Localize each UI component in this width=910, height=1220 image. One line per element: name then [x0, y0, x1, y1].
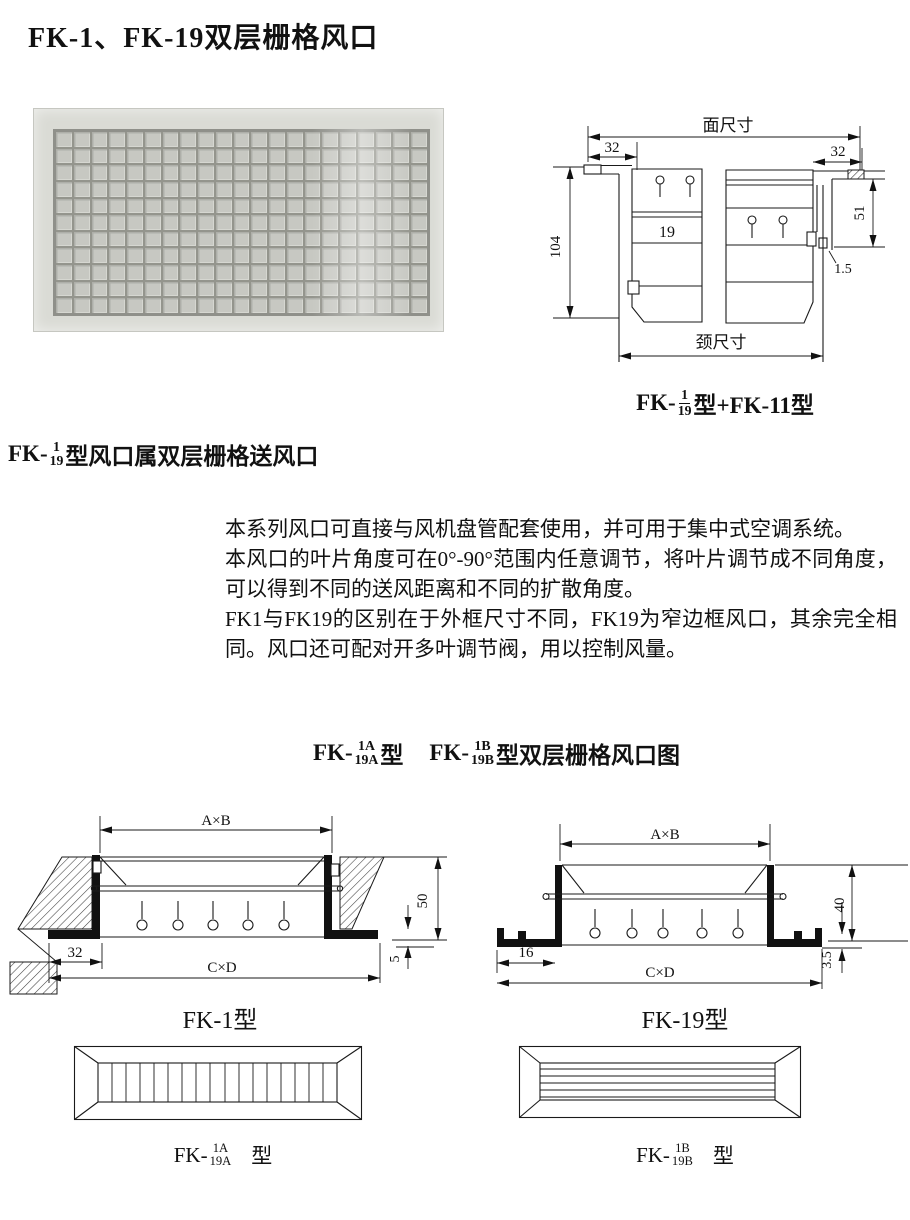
- fraction: 1B19B: [471, 739, 494, 767]
- grille-cell: [216, 149, 232, 164]
- face-view-b-svg: [518, 1045, 802, 1119]
- grille-cell: [92, 165, 108, 180]
- grille-cell: [180, 215, 196, 230]
- grille-cell: [234, 248, 250, 263]
- grille-cell: [269, 298, 285, 313]
- grille-cell: [56, 248, 72, 263]
- grille-cell: [109, 149, 125, 164]
- grille-cell: [411, 149, 427, 164]
- dim-51-label: 51: [852, 206, 868, 221]
- grille-cell: [198, 265, 214, 280]
- drawing-fk1-svg: A×B 32 C×D 50 5: [10, 797, 450, 997]
- grille-cell: [198, 149, 214, 164]
- grille-cell: [216, 215, 232, 230]
- grille-cell: [198, 282, 214, 297]
- grille-cell: [127, 232, 143, 247]
- grille-cell: [251, 215, 267, 230]
- grille-cell: [92, 149, 108, 164]
- grille-cell: [163, 298, 179, 313]
- drawing-combined: 面尺寸 32 32 104 51 19 1.5 颈尺寸 FK-119型+FK-1…: [540, 100, 910, 420]
- fk1-cd-label: C×D: [207, 960, 236, 976]
- grille-cell: [411, 298, 427, 313]
- grille-cell: [198, 298, 214, 313]
- grille-cell: [163, 165, 179, 180]
- face-a-linework: [75, 1047, 362, 1120]
- grille-cell: [234, 282, 250, 297]
- grille-cell: [145, 232, 161, 247]
- grille-cell: [251, 182, 267, 197]
- grille-cell: [145, 165, 161, 180]
- grille-cell: [251, 298, 267, 313]
- grille-cell: [109, 215, 125, 230]
- grille-cell: [109, 232, 125, 247]
- grille-cell: [74, 165, 90, 180]
- grille-cell: [287, 248, 303, 263]
- grille-cell: [127, 149, 143, 164]
- grille-cell: [56, 149, 72, 164]
- fraction: 1A19A: [355, 739, 379, 767]
- grille-cell: [180, 282, 196, 297]
- grille-cell: [251, 265, 267, 280]
- grille-cell: [411, 265, 427, 280]
- grille-cell: [74, 265, 90, 280]
- grille-cell: [269, 149, 285, 164]
- grille-cell: [74, 182, 90, 197]
- dim-32-right-label: 32: [831, 144, 846, 160]
- grille-cell: [56, 199, 72, 214]
- fk1-50-label: 50: [415, 894, 431, 909]
- grille-cell: [234, 132, 250, 147]
- grille-cell: [109, 132, 125, 147]
- grille-cell: [56, 298, 72, 313]
- grille-cell: [163, 182, 179, 197]
- grille-cell: [127, 182, 143, 197]
- grille-cell: [92, 265, 108, 280]
- grille-cell: [234, 232, 250, 247]
- grille-cell: [251, 199, 267, 214]
- grille-cell: [109, 199, 125, 214]
- grille-cell: [251, 132, 267, 147]
- grille-cell: [180, 232, 196, 247]
- grille-cell: [287, 149, 303, 164]
- dim-face-label: 面尺寸: [703, 116, 754, 135]
- grille-cell: [56, 232, 72, 247]
- grille-cell: [145, 298, 161, 313]
- grille-cell: [234, 165, 250, 180]
- grille-cell: [198, 248, 214, 263]
- grille-cell: [56, 282, 72, 297]
- body-text: 本系列风口可直接与风机盘管配套使用，并可用于集中式空调系统。 本风口的叶片角度可…: [225, 514, 897, 664]
- grille-cell: [287, 232, 303, 247]
- grille-cell: [411, 132, 427, 147]
- grille-cell: [198, 165, 214, 180]
- grille-cell: [234, 149, 250, 164]
- grille-cell: [74, 232, 90, 247]
- grille-cell: [180, 199, 196, 214]
- grille-cell: [216, 199, 232, 214]
- grille-cell: [56, 165, 72, 180]
- fraction: 119: [50, 440, 64, 468]
- grille-cell: [269, 265, 285, 280]
- grille-cell: [145, 265, 161, 280]
- fk1-32-label: 32: [68, 945, 83, 961]
- grille-cell: [74, 149, 90, 164]
- face-a-caption: FK-1A19A型: [73, 1140, 373, 1170]
- grille-cell: [92, 282, 108, 297]
- grille-cell: [163, 265, 179, 280]
- face-view-a-svg: [73, 1045, 363, 1121]
- grille-cell: [145, 282, 161, 297]
- grille-cell: [56, 132, 72, 147]
- grille-cell: [180, 149, 196, 164]
- grille-cell: [145, 215, 161, 230]
- d1-linework: [553, 126, 885, 362]
- grille-cell: [269, 215, 285, 230]
- grille-cell: [269, 199, 285, 214]
- dim-104-label: 104: [548, 235, 564, 258]
- grille-cell: [127, 282, 143, 297]
- grille-cell: [411, 248, 427, 263]
- grille-cell: [269, 232, 285, 247]
- grille-cell: [251, 248, 267, 263]
- grille-cell: [251, 282, 267, 297]
- grille-cell: [56, 265, 72, 280]
- face-b-linework: [520, 1047, 801, 1118]
- grille-cell: [216, 232, 232, 247]
- grille-cell: [127, 199, 143, 214]
- grille-cell: [216, 248, 232, 263]
- grille-cell: [56, 182, 72, 197]
- grille-cell: [163, 282, 179, 297]
- grille-cell: [287, 298, 303, 313]
- grille-cell: [127, 265, 143, 280]
- grille-cell: [163, 199, 179, 214]
- grille-cell: [216, 298, 232, 313]
- grille-cell: [56, 215, 72, 230]
- grille-cell: [234, 298, 250, 313]
- grille-cell: [74, 132, 90, 147]
- grille-cell: [92, 199, 108, 214]
- grille-cell: [92, 182, 108, 197]
- grille-cell: [92, 248, 108, 263]
- grille-cell: [163, 232, 179, 247]
- grille-cell: [127, 298, 143, 313]
- grille-cell: [198, 199, 214, 214]
- fk19-40-label: 40: [832, 898, 848, 913]
- grille-cell: [163, 248, 179, 263]
- grille-cell: [269, 248, 285, 263]
- grille-cell: [269, 282, 285, 297]
- grille-cell: [216, 282, 232, 297]
- face-b-caption: FK-1B19B型: [535, 1140, 835, 1170]
- grille-cell: [234, 215, 250, 230]
- grille-cell: [74, 282, 90, 297]
- grille-cell: [411, 282, 427, 297]
- fraction: 1A19A: [210, 1142, 232, 1168]
- grille-cell: [163, 215, 179, 230]
- grille-cell: [74, 298, 90, 313]
- fk1-ab-label: A×B: [201, 813, 230, 829]
- grille-cell: [109, 165, 125, 180]
- fraction: 1B19B: [672, 1142, 693, 1168]
- drawing-fk19-svg: A×B 16 C×D 40 3.5: [470, 797, 910, 997]
- grille-cell: [109, 265, 125, 280]
- grille-cell: [163, 132, 179, 147]
- grille-cell: [287, 215, 303, 230]
- grille-cell: [180, 265, 196, 280]
- fk19-ab-label: A×B: [650, 827, 679, 843]
- grille-cell: [198, 132, 214, 147]
- grille-cell: [127, 215, 143, 230]
- grille-cell: [109, 248, 125, 263]
- grille-cell: [163, 149, 179, 164]
- grille-cell: [145, 248, 161, 263]
- drawing-fk19: A×B 16 C×D 40 3.5: [470, 797, 910, 997]
- fraction: 119: [678, 388, 692, 417]
- grille-cell: [74, 215, 90, 230]
- grille-cell: [127, 165, 143, 180]
- grille-cell: [287, 165, 303, 180]
- dim-1-5-label: 1.5: [834, 262, 852, 277]
- fk19-16-label: 16: [519, 945, 535, 961]
- grille-cell: [269, 182, 285, 197]
- dim-neck-label: 颈尺寸: [696, 333, 747, 352]
- grille-cell: [109, 298, 125, 313]
- fk19-caption: FK-19型: [470, 1000, 900, 1035]
- grille-cell: [411, 199, 427, 214]
- drawing-combined-svg: 面尺寸 32 32 104 51 19 1.5 颈尺寸: [540, 100, 910, 372]
- grille-cell: [92, 132, 108, 147]
- grille-cell: [109, 182, 125, 197]
- grille-cell: [234, 265, 250, 280]
- fk19-3-5-label: 3.5: [820, 951, 835, 969]
- grille-cell: [411, 165, 427, 180]
- intro-heading: FK-119型风口属双层栅格送风口: [8, 437, 318, 471]
- grille-cell: [411, 182, 427, 197]
- paragraph-3: FK1与FK19的区别在于外框尺寸不同，FK19为窄边框风口，其余完全相同。风口…: [225, 604, 897, 664]
- grille-cell: [145, 199, 161, 214]
- grille-cell: [74, 248, 90, 263]
- grille-cell: [198, 215, 214, 230]
- grille-cell: [74, 199, 90, 214]
- drawing-fk1: A×B 32 C×D 50 5: [10, 797, 450, 997]
- grille-cell: [287, 282, 303, 297]
- grille-cell: [92, 298, 108, 313]
- grille-cell: [216, 265, 232, 280]
- grille-cell: [92, 232, 108, 247]
- grille-cell: [198, 182, 214, 197]
- grille-cell: [287, 265, 303, 280]
- grille-cell: [234, 182, 250, 197]
- grille-cell: [269, 165, 285, 180]
- grille-cell: [251, 232, 267, 247]
- paragraph-2: 本风口的叶片角度可在0°-90°范围内任意调节，将叶片调节成不同角度，可以得到不…: [225, 544, 897, 604]
- grille-cell: [145, 132, 161, 147]
- fk1-5-label: 5: [388, 956, 403, 963]
- grille-cell: [180, 298, 196, 313]
- grille-cell: [180, 182, 196, 197]
- grille-cell: [287, 132, 303, 147]
- dim-32-left-label: 32: [605, 140, 620, 156]
- grille-cell: [145, 149, 161, 164]
- grille-cell: [180, 132, 196, 147]
- grille-cell: [198, 232, 214, 247]
- photo-glare: [312, 129, 412, 316]
- face-view-a: [73, 1045, 363, 1121]
- drawing-combined-caption: FK-119型+FK-11型: [540, 386, 910, 420]
- grille-cell: [92, 215, 108, 230]
- grille-cell: [145, 182, 161, 197]
- section-heading: FK-1A19A型 FK-1B19B型双层栅格风口图: [313, 736, 680, 770]
- grille-cell: [411, 232, 427, 247]
- face-view-b: [518, 1045, 802, 1119]
- grille-cell: [216, 132, 232, 147]
- grille-cell: [251, 165, 267, 180]
- grille-cell: [127, 132, 143, 147]
- grille-cell: [127, 248, 143, 263]
- grille-cell: [109, 282, 125, 297]
- grille-cell: [269, 132, 285, 147]
- grille-cell: [216, 165, 232, 180]
- grille-cell: [287, 199, 303, 214]
- paragraph-1: 本系列风口可直接与风机盘管配套使用，并可用于集中式空调系统。: [225, 514, 897, 544]
- page-title: FK-1、FK-19双层栅格风口: [28, 16, 378, 56]
- dim-19-label: 19: [659, 224, 675, 241]
- fk19-cd-label: C×D: [645, 965, 674, 981]
- fk1-caption: FK-1型: [10, 1000, 430, 1035]
- grille-cell: [180, 165, 196, 180]
- grille-cell: [216, 182, 232, 197]
- grille-cell: [251, 149, 267, 164]
- grille-cell: [234, 199, 250, 214]
- grille-photo: [33, 108, 444, 332]
- grille-cell: [287, 182, 303, 197]
- grille-cell: [180, 248, 196, 263]
- grille-cell: [411, 215, 427, 230]
